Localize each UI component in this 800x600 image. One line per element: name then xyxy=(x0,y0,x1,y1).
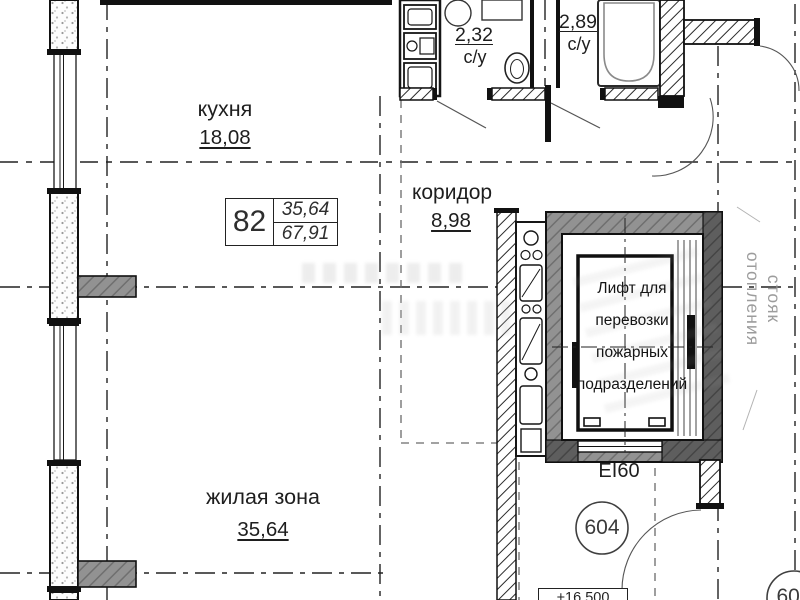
fire-rating-label: EI60 xyxy=(586,460,652,482)
unit-604-label: 604 xyxy=(576,516,628,540)
window xyxy=(54,325,76,460)
door-leaf xyxy=(437,101,486,128)
top-right-walls xyxy=(652,0,799,176)
sink-icon xyxy=(445,0,471,26)
floor-plan: кухня 18,08 коридор 8,98 жилая зона 35,6… xyxy=(0,0,800,600)
kitchen-area: 18,08 xyxy=(183,127,267,150)
door-arc xyxy=(622,510,701,590)
elevation-mark: +16,500 xyxy=(538,588,628,600)
bathroom-small-label: с/у xyxy=(455,48,495,68)
unit-606-label: 606 xyxy=(767,585,800,600)
door-arc xyxy=(652,98,713,176)
corridor-area: 8,98 xyxy=(407,210,495,233)
heating-riser-label: стояк отопления xyxy=(740,224,784,374)
riser-shaft-fixtures xyxy=(516,222,546,456)
kitchen-top-wall xyxy=(100,0,392,5)
door-leaf xyxy=(551,103,600,128)
bathroom-small-area: 2,32 xyxy=(448,25,500,46)
kitchen-label: кухня xyxy=(180,98,270,122)
apartment-living-area: 35,64 xyxy=(274,199,337,223)
window xyxy=(54,53,76,192)
left-exterior-wall xyxy=(47,0,81,600)
bathtub-icon xyxy=(598,0,660,86)
bathroom-large-label: с/у xyxy=(558,35,600,55)
bathroom-large-area: 2,89 xyxy=(551,12,605,33)
door-arc xyxy=(760,46,799,91)
toilet-icon xyxy=(505,53,529,83)
living-zone-label: жилая зона xyxy=(198,486,328,510)
living-zone-area: 35,64 xyxy=(213,519,313,542)
counter xyxy=(482,0,522,20)
apartment-tag: 82 35,64 67,91 xyxy=(225,198,338,246)
corridor-label: коридор xyxy=(404,181,500,204)
elevator-label: Лифт для перевозки пожарных подразделени… xyxy=(556,273,708,401)
apartment-total-area: 67,91 xyxy=(274,223,337,246)
apartment-number: 82 xyxy=(226,199,274,245)
